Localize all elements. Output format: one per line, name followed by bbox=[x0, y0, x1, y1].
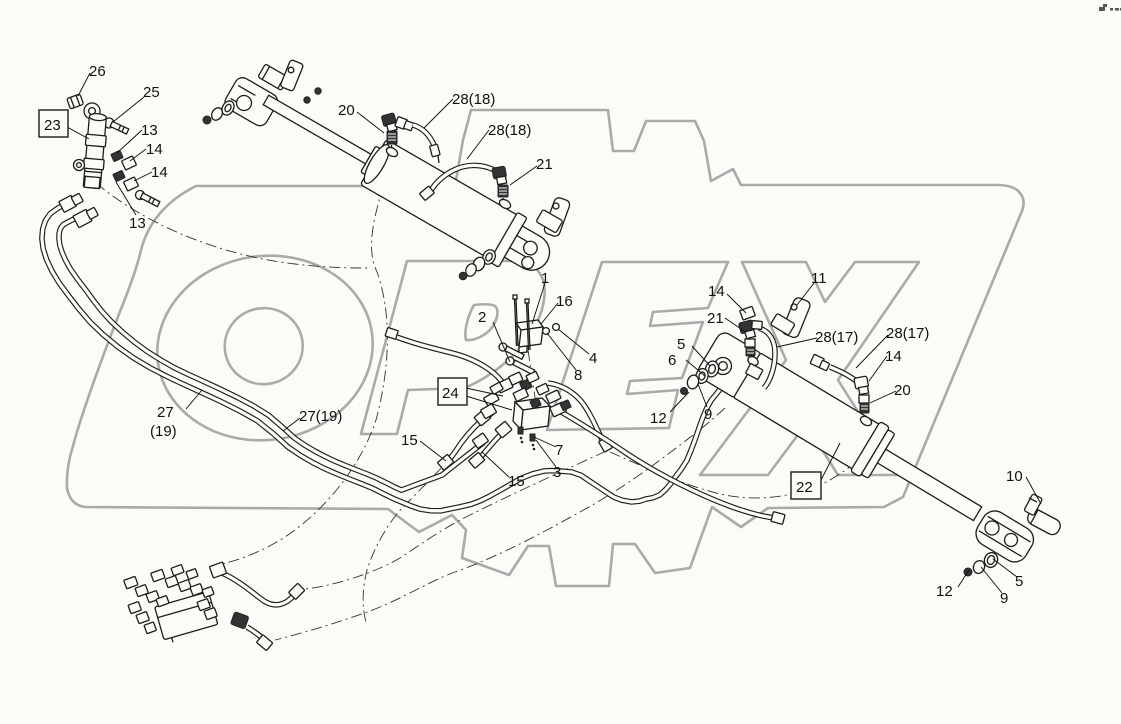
svg-text:28(18): 28(18) bbox=[452, 91, 495, 108]
svg-text:14: 14 bbox=[146, 141, 163, 158]
svg-text:8: 8 bbox=[574, 367, 582, 384]
svg-text:20: 20 bbox=[894, 382, 911, 399]
svg-text:10: 10 bbox=[1006, 468, 1023, 485]
svg-text:23: 23 bbox=[44, 117, 61, 134]
svg-text:14: 14 bbox=[151, 164, 168, 181]
svg-text:15: 15 bbox=[508, 473, 525, 490]
svg-text:15: 15 bbox=[401, 432, 418, 449]
svg-text:26: 26 bbox=[89, 63, 106, 80]
svg-text:21: 21 bbox=[536, 156, 553, 173]
svg-text:12: 12 bbox=[650, 410, 667, 427]
svg-text:14: 14 bbox=[708, 283, 725, 300]
svg-text:12: 12 bbox=[936, 583, 953, 600]
svg-text:3: 3 bbox=[553, 464, 561, 481]
svg-text:9: 9 bbox=[1000, 590, 1008, 607]
svg-text:(19): (19) bbox=[150, 423, 177, 440]
svg-text:24: 24 bbox=[442, 385, 459, 402]
svg-text:28(17): 28(17) bbox=[886, 325, 929, 342]
svg-text:21: 21 bbox=[707, 310, 724, 327]
svg-text:27(19): 27(19) bbox=[299, 408, 342, 425]
svg-text:20: 20 bbox=[338, 102, 355, 119]
svg-text:1: 1 bbox=[541, 270, 549, 287]
svg-text:5: 5 bbox=[1015, 573, 1023, 590]
svg-text:13: 13 bbox=[129, 215, 146, 232]
svg-text:9: 9 bbox=[704, 406, 712, 423]
svg-text:5: 5 bbox=[677, 336, 685, 353]
svg-text:7: 7 bbox=[555, 442, 563, 459]
svg-text:25: 25 bbox=[143, 84, 160, 101]
svg-text:27: 27 bbox=[157, 404, 174, 421]
svg-text:6: 6 bbox=[668, 352, 676, 369]
svg-text:28(18): 28(18) bbox=[488, 122, 531, 139]
svg-text:16: 16 bbox=[556, 293, 573, 310]
svg-text:22: 22 bbox=[796, 479, 813, 496]
svg-text:4: 4 bbox=[589, 350, 597, 367]
svg-text:2: 2 bbox=[478, 309, 486, 326]
svg-text:13: 13 bbox=[141, 122, 158, 139]
svg-text:14: 14 bbox=[885, 348, 902, 365]
svg-text:28(17): 28(17) bbox=[815, 329, 858, 346]
svg-text:11: 11 bbox=[811, 270, 827, 287]
